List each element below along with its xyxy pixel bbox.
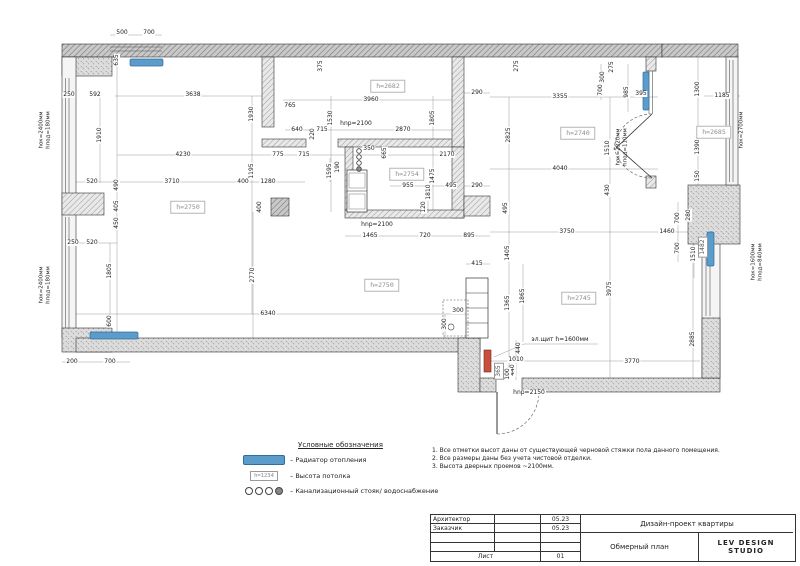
client-label: Заказчик	[431, 524, 495, 533]
drawing-title: Обмерный план	[581, 533, 699, 561]
empty-cell	[495, 533, 541, 542]
column	[271, 198, 289, 216]
legend: Условные обозначения – Радиатор отоплени…	[238, 441, 443, 501]
measurement-plan-sheet: 5007002505923638396029076533553951185640…	[0, 0, 800, 566]
title-block: Архитектор 05.23 Дизайн-проект квартиры …	[430, 514, 796, 562]
sewer-stack-symbol	[238, 487, 290, 495]
height-box-symbol: h=1234	[238, 471, 290, 481]
window-glazing-lines	[66, 47, 734, 328]
client-name	[495, 524, 541, 533]
kitchen-unit-dashed	[443, 300, 468, 336]
sheet-label: Лист	[431, 552, 541, 561]
notes: 1. Все отметки высот даны от существующе…	[432, 447, 782, 471]
legend-item-label: – Радиатор отопления	[290, 456, 366, 464]
legend-item-label: – Высота потолка	[290, 472, 350, 480]
client-date: 05.23	[541, 524, 581, 533]
legend-item-sewer-stack: – Канализационный стояк/ водоснабжение	[238, 487, 443, 495]
legend-item-radiator: – Радиатор отопления	[238, 455, 443, 465]
project-title: Дизайн-проект квартиры	[581, 515, 793, 533]
architect-label: Архитектор	[431, 515, 495, 524]
radiator-symbol	[238, 455, 290, 465]
radiators	[90, 59, 714, 339]
legend-item-ceiling-height: h=1234 – Высота потолка	[238, 471, 443, 481]
dimension-lines	[62, 35, 740, 380]
note-1: 1. Все отметки высот даны от существующе…	[432, 447, 782, 455]
note-3: 3. Высота дверных проемов ~2100мм.	[432, 463, 782, 471]
empty-cell	[541, 543, 581, 552]
radiator	[130, 59, 163, 66]
empty-cell	[431, 533, 495, 542]
sheet-number: 01	[541, 552, 581, 561]
note-2: 2. Все размеры даны без учета чистовой о…	[432, 455, 782, 463]
architect-name	[495, 515, 541, 524]
legend-item-label: – Канализационный стояк/ водоснабжение	[290, 487, 438, 495]
sewer-stack	[357, 149, 362, 172]
empty-cell	[541, 533, 581, 542]
legend-title: Условные обозначения	[238, 441, 443, 449]
empty-cell	[495, 543, 541, 552]
radiator	[90, 332, 138, 339]
architect-date: 05.23	[541, 515, 581, 524]
interior-walls	[262, 57, 656, 218]
plumbing-fixtures	[347, 149, 488, 338]
electrical-panel	[484, 350, 491, 372]
empty-cell	[431, 543, 495, 552]
radiator	[707, 232, 714, 266]
studio-name: LEV DESIGN STUDIO	[699, 533, 793, 561]
radiator	[643, 72, 649, 110]
